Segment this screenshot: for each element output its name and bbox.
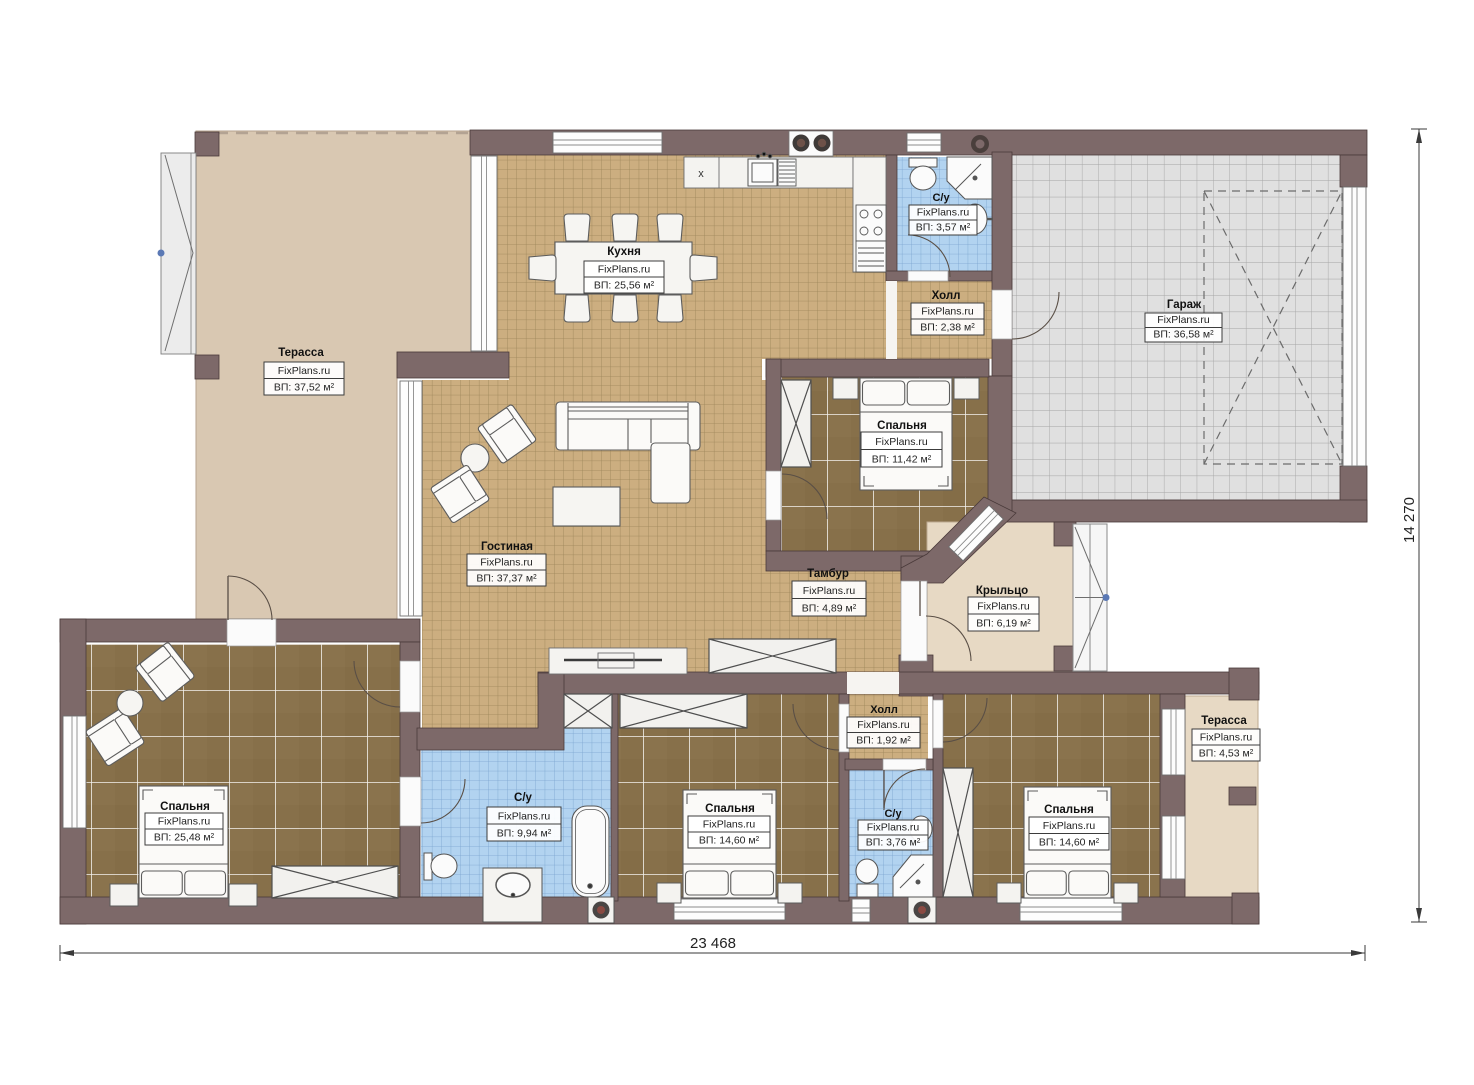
svg-text:FixPlans.ru: FixPlans.ru xyxy=(917,207,970,219)
svg-text:Холл: Холл xyxy=(870,704,898,716)
svg-text:Терасса: Терасса xyxy=(278,347,324,359)
svg-text:x: x xyxy=(698,168,704,180)
svg-text:14 270: 14 270 xyxy=(1401,497,1418,543)
svg-text:FixPlans.ru: FixPlans.ru xyxy=(803,585,856,597)
svg-text:23 468: 23 468 xyxy=(690,935,736,952)
svg-text:Терасса: Терасса xyxy=(1201,715,1247,727)
svg-text:С/у: С/у xyxy=(884,808,902,820)
svg-text:FixPlans.ru: FixPlans.ru xyxy=(867,822,920,834)
svg-text:Крыльцо: Крыльцо xyxy=(976,585,1028,597)
svg-text:ВП: 3,57 м²: ВП: 3,57 м² xyxy=(916,222,971,234)
svg-text:FixPlans.ru: FixPlans.ru xyxy=(498,811,551,823)
svg-text:ВП: 14,60 м²: ВП: 14,60 м² xyxy=(699,835,760,847)
svg-text:Гостиная: Гостиная xyxy=(481,541,533,553)
svg-text:ВП: 14,60 м²: ВП: 14,60 м² xyxy=(1039,837,1100,849)
svg-text:ВП: 25,56 м²: ВП: 25,56 м² xyxy=(594,280,655,292)
svg-text:Гараж: Гараж xyxy=(1167,299,1202,311)
svg-text:Спальня: Спальня xyxy=(705,803,755,815)
svg-text:С/у: С/у xyxy=(514,792,533,804)
svg-text:ВП: 9,94 м²: ВП: 9,94 м² xyxy=(497,828,552,840)
svg-text:FixPlans.ru: FixPlans.ru xyxy=(1043,820,1096,832)
svg-text:Тамбур: Тамбур xyxy=(807,568,849,580)
svg-text:FixPlans.ru: FixPlans.ru xyxy=(480,557,533,569)
svg-text:FixPlans.ru: FixPlans.ru xyxy=(875,436,928,448)
svg-text:FixPlans.ru: FixPlans.ru xyxy=(158,816,211,828)
svg-text:FixPlans.ru: FixPlans.ru xyxy=(921,306,974,318)
svg-text:FixPlans.ru: FixPlans.ru xyxy=(703,819,756,831)
svg-text:FixPlans.ru: FixPlans.ru xyxy=(278,365,331,377)
svg-text:ВП: 37,52 м²: ВП: 37,52 м² xyxy=(274,382,335,394)
svg-text:FixPlans.ru: FixPlans.ru xyxy=(1157,314,1210,326)
svg-text:ВП: 36,58 м²: ВП: 36,58 м² xyxy=(1153,329,1214,341)
svg-text:ВП: 3,76 м²: ВП: 3,76 м² xyxy=(866,837,921,849)
svg-text:Спальня: Спальня xyxy=(877,420,927,432)
svg-text:ВП: 6,19 м²: ВП: 6,19 м² xyxy=(976,618,1031,630)
svg-text:Кухня: Кухня xyxy=(607,246,641,258)
svg-text:ВП: 37,37 м²: ВП: 37,37 м² xyxy=(476,573,537,585)
svg-text:FixPlans.ru: FixPlans.ru xyxy=(598,264,651,276)
svg-text:ВП: 4,89 м²: ВП: 4,89 м² xyxy=(802,603,857,615)
svg-text:FixPlans.ru: FixPlans.ru xyxy=(857,719,910,731)
svg-text:ВП: 25,48 м²: ВП: 25,48 м² xyxy=(154,832,215,844)
svg-text:FixPlans.ru: FixPlans.ru xyxy=(977,601,1030,613)
svg-text:С/у: С/у xyxy=(932,192,950,204)
svg-text:Спальня: Спальня xyxy=(1044,804,1094,816)
svg-text:ВП: 4,53 м²: ВП: 4,53 м² xyxy=(1199,748,1254,760)
svg-text:ВП: 2,38 м²: ВП: 2,38 м² xyxy=(920,322,975,334)
svg-text:ВП: 11,42 м²: ВП: 11,42 м² xyxy=(872,454,932,466)
svg-text:ВП: 1,92 м²: ВП: 1,92 м² xyxy=(856,735,911,747)
svg-text:FixPlans.ru: FixPlans.ru xyxy=(1200,732,1253,744)
svg-text:Спальня: Спальня xyxy=(160,801,210,813)
svg-text:Холл: Холл xyxy=(932,290,961,302)
